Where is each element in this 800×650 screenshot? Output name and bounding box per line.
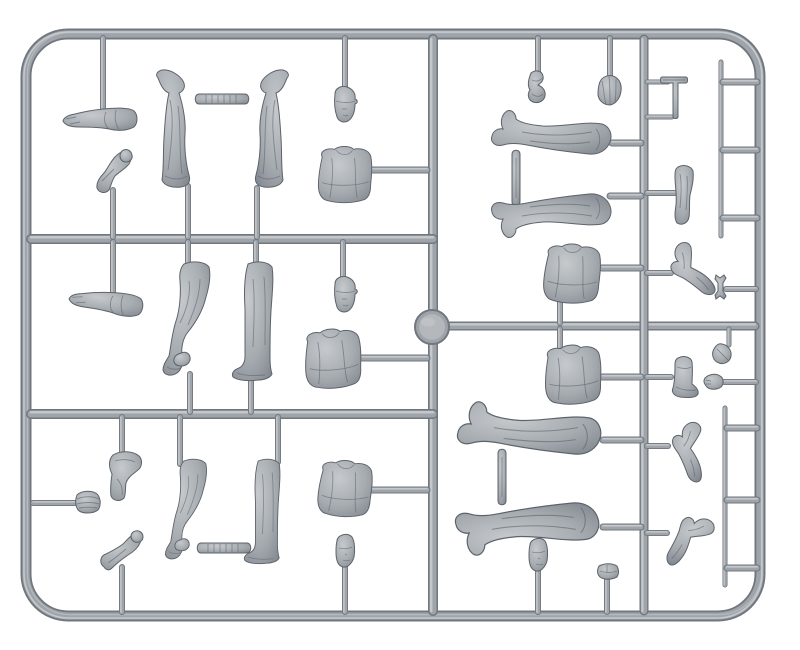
bent-knee-legs-middle [163,262,210,375]
lying-legs-toe-up-lower [457,402,600,454]
goggles-visor [598,564,619,580]
model-kit-sprue [0,0,800,650]
capped-head-upper [335,86,358,122]
tie-bar-lower-right [498,449,506,505]
capped-head-middle [335,276,358,312]
lying-legs-toe-up-upper [492,111,611,155]
greatcoat-legs-right [255,70,288,187]
hanging-arm [675,166,693,225]
greatcoat-legs-left [157,70,190,187]
sprue-runners [31,39,755,611]
hanging-bent-arm [110,452,142,501]
bare-head-lower-left [336,534,355,567]
ribbed-capped-head [598,75,621,105]
gauntlet-elbow-arm-upper [666,419,710,482]
standing-legs-middle [232,262,272,381]
sprue-photo [0,0,800,650]
rolled-side-cap [76,491,101,513]
raised-fist-arm [101,531,143,570]
hammer-tool [661,77,688,119]
open-hand-arm [63,108,137,130]
gauntlet-elbow-arm-lower [653,508,721,567]
jacket-torso-upper-right [543,243,601,304]
single-boot [672,357,698,398]
bare-head-lower-right [529,538,548,571]
jacket-torso-upper-left [318,147,371,203]
straight-arm [68,286,144,318]
twisted-side-cap [528,71,545,103]
ribbed-tie-bar-top [195,94,249,104]
sprue-hub [415,310,449,344]
lying-legs-toe-down-lower [455,503,598,555]
small-hand [704,374,723,389]
tie-bar-upper-right [512,150,520,206]
jacket-torso-middle-left [303,327,363,390]
bent-elbow-arm [664,238,716,305]
jacket-torso-lower-left [317,459,373,518]
ribbed-tie-bar-bottom [197,543,251,553]
lying-legs-toe-down-upper [492,194,611,238]
gripping-bent-arm [97,150,132,193]
jacket-torso-lower-right [543,344,602,406]
